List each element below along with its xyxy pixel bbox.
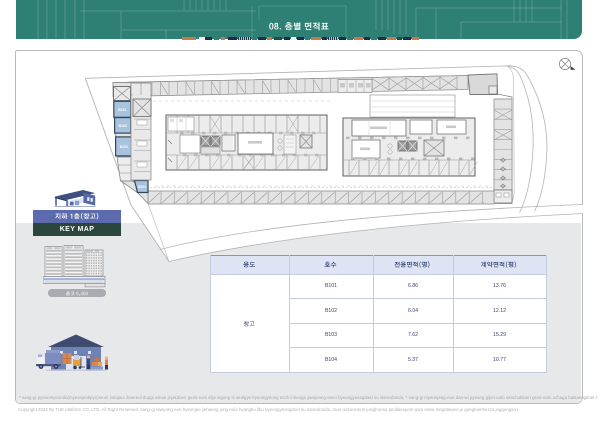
svg-text:B103: B103: [120, 145, 128, 149]
svg-text:B104: B104: [138, 185, 146, 189]
svg-text:B101: B101: [118, 108, 126, 112]
svg-text:B102: B102: [119, 124, 127, 128]
